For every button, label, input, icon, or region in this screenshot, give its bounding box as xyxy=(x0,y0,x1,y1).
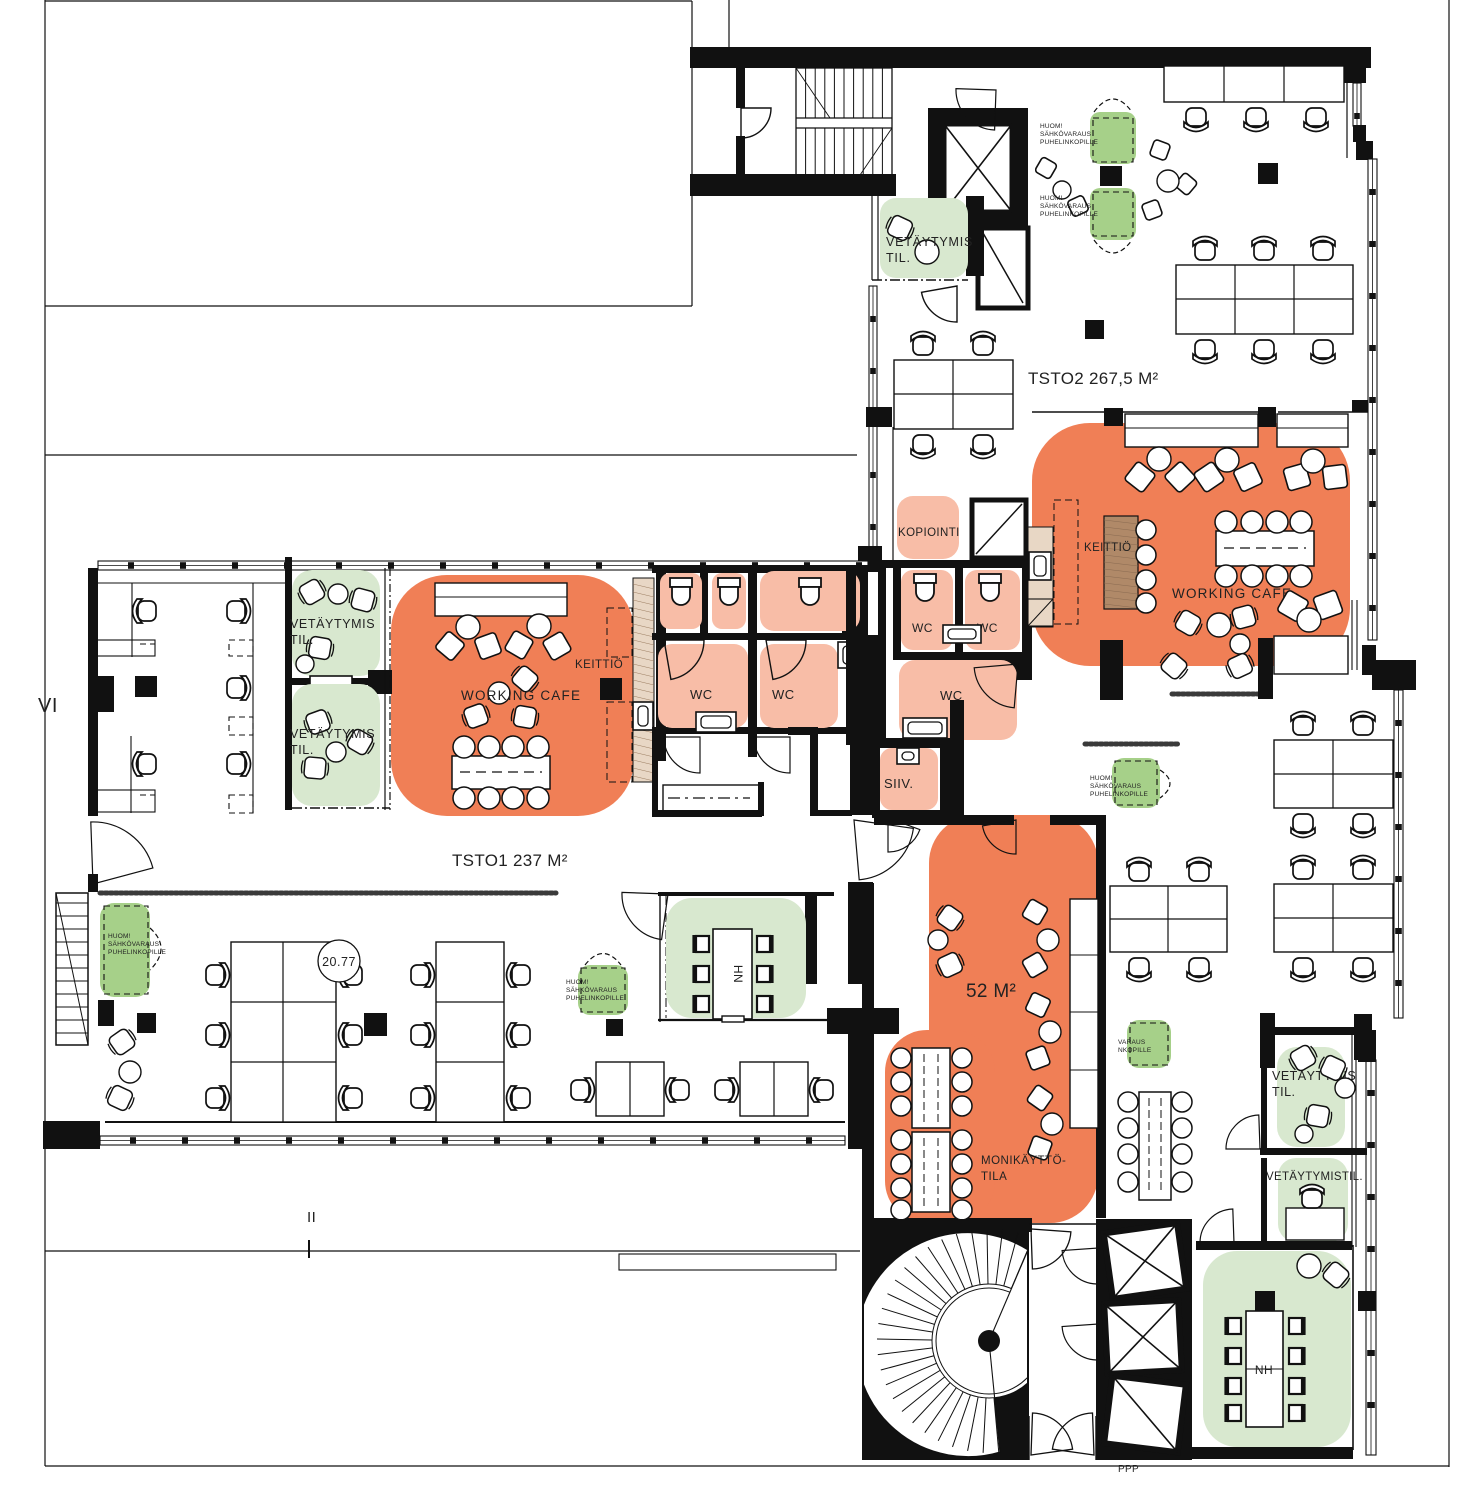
svg-text:SÄHKÖVARAUS: SÄHKÖVARAUS xyxy=(108,940,160,948)
svg-text:VARAUS: VARAUS xyxy=(1118,1039,1146,1046)
svg-text:TIL.: TIL. xyxy=(1272,1085,1296,1099)
svg-text:HUOM!: HUOM! xyxy=(1040,123,1063,130)
svg-text:WC: WC xyxy=(690,687,713,702)
svg-text:PUHELINKOPILLE: PUHELINKOPILLE xyxy=(566,995,625,1002)
svg-text:HUOM!: HUOM! xyxy=(566,979,589,986)
svg-text:TSTO2 267,5 M²: TSTO2 267,5 M² xyxy=(1028,369,1159,388)
svg-text:HN: HN xyxy=(731,965,745,983)
svg-text:MONIKÄYTTÖ-: MONIKÄYTTÖ- xyxy=(981,1155,1066,1167)
svg-text:WORKING CAFE: WORKING CAFE xyxy=(461,688,581,703)
svg-text:SIIV.: SIIV. xyxy=(884,776,913,791)
svg-text:VETÄYTYMIS: VETÄYTYMIS xyxy=(290,617,375,631)
svg-text:VETÄYTYMIS: VETÄYTYMIS xyxy=(290,727,375,741)
svg-text:TILA: TILA xyxy=(981,1171,1007,1183)
svg-text:HUOM!: HUOM! xyxy=(1040,195,1063,202)
svg-text:PUHELINKOPILLE: PUHELINKOPILLE xyxy=(1040,211,1099,218)
svg-text:KEITTIÖ: KEITTIÖ xyxy=(1084,542,1132,554)
svg-text:TIL.: TIL. xyxy=(886,251,911,265)
svg-text:HUOM!: HUOM! xyxy=(1090,775,1113,782)
svg-text:WORKING CAFE: WORKING CAFE xyxy=(1172,586,1292,601)
svg-text:20.77: 20.77 xyxy=(322,955,356,969)
svg-text:KEITTIÖ: KEITTIÖ xyxy=(575,659,623,671)
svg-text:PPP: PPP xyxy=(1118,1464,1139,1475)
svg-text:NH: NH xyxy=(1255,1363,1273,1377)
svg-text:WC: WC xyxy=(912,621,933,635)
svg-text:PUHELINKOPILLE: PUHELINKOPILLE xyxy=(108,949,167,956)
svg-text:KOPIOINTI: KOPIOINTI xyxy=(898,527,960,539)
svg-text:TIL.: TIL. xyxy=(290,743,314,757)
svg-text:SÄHKÖVARAUS: SÄHKÖVARAUS xyxy=(566,986,618,994)
svg-text:PUHELINKOPILLE: PUHELINKOPILLE xyxy=(1040,139,1099,146)
svg-text:II: II xyxy=(307,1209,316,1226)
svg-text:VETÄYTYMISTIL.: VETÄYTYMISTIL. xyxy=(1266,1171,1363,1183)
svg-text:HUOM!: HUOM! xyxy=(108,933,131,940)
svg-text:NKOPILLE: NKOPILLE xyxy=(1118,1047,1152,1054)
svg-text:SÄHKÖVARAUS: SÄHKÖVARAUS xyxy=(1040,130,1092,138)
svg-text:SÄHKÖVARAUS: SÄHKÖVARAUS xyxy=(1090,782,1142,790)
svg-text:TIL.: TIL. xyxy=(290,633,314,647)
svg-text:SÄHKÖVARAUS: SÄHKÖVARAUS xyxy=(1040,202,1092,210)
svg-text:VI: VI xyxy=(38,695,58,717)
svg-text:WC: WC xyxy=(772,687,795,702)
svg-text:PUHELINKOPILLE: PUHELINKOPILLE xyxy=(1090,791,1149,798)
svg-text:TSTO1 237 M²: TSTO1 237 M² xyxy=(452,851,568,870)
svg-text:VETÄYTYMIS: VETÄYTYMIS xyxy=(886,235,973,249)
svg-text:52 M²: 52 M² xyxy=(966,981,1016,1002)
